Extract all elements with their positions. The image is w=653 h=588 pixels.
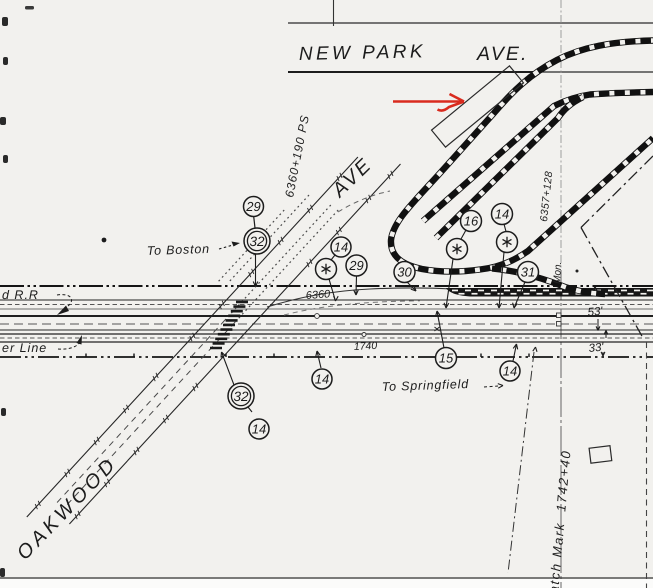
svg-text:NEW PARK: NEW PARK <box>299 41 427 65</box>
svg-text:14: 14 <box>495 207 509 222</box>
svg-text:53': 53' <box>587 305 604 319</box>
svg-text:er Line: er Line <box>2 341 47 355</box>
svg-text:32: 32 <box>233 389 249 404</box>
svg-text:32: 32 <box>249 234 265 249</box>
svg-text:14: 14 <box>334 240 348 255</box>
svg-text:6360: 6360 <box>305 288 331 302</box>
svg-text:To Boston: To Boston <box>147 242 210 258</box>
svg-text:29: 29 <box>348 258 363 273</box>
svg-text:29: 29 <box>245 199 260 214</box>
svg-text:15: 15 <box>439 351 454 366</box>
svg-text:14: 14 <box>315 372 329 387</box>
svg-text:AVE.: AVE. <box>476 43 528 65</box>
svg-text:14: 14 <box>503 364 517 379</box>
svg-text:31: 31 <box>521 265 535 280</box>
svg-text:33': 33' <box>588 341 605 355</box>
svg-text:1740: 1740 <box>354 340 378 353</box>
svg-text:Mon.: Mon. <box>552 261 564 284</box>
svg-text:16: 16 <box>464 214 479 229</box>
svg-text:d R.R: d R.R <box>2 288 39 302</box>
svg-text:30: 30 <box>397 265 412 280</box>
svg-text:14: 14 <box>252 422 266 437</box>
